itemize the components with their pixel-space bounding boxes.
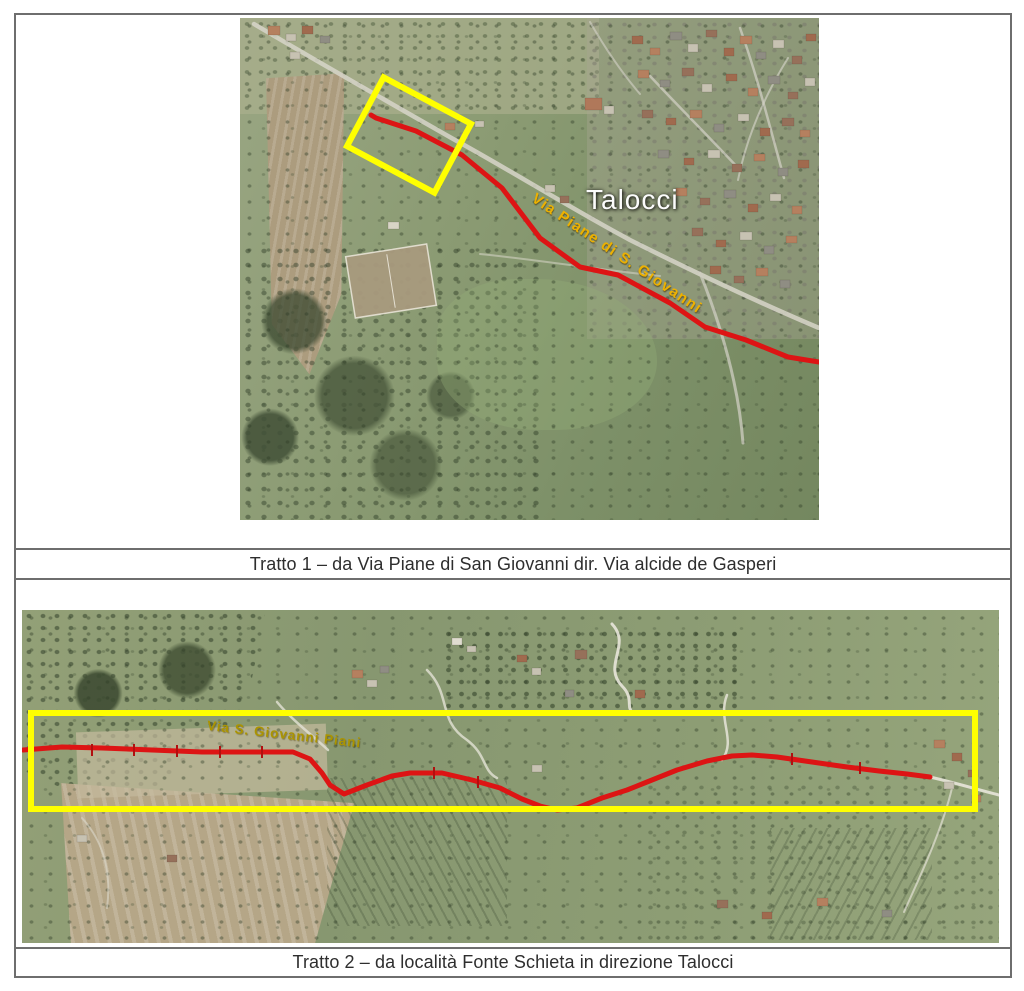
figure1-cell: Talocci Via Piane di S. Giovanni (16, 15, 1010, 548)
highlight-box-tratto2 (31, 713, 975, 809)
satellite-image-tratto2: Via S. Giovanni Piani (22, 610, 999, 943)
figure2-cell: Via S. Giovanni Piani (16, 578, 1010, 947)
figures-table: Talocci Via Piane di S. Giovanni Tratto … (14, 13, 1012, 978)
satellite-image-tratto1: Talocci Via Piane di S. Giovanni (240, 18, 819, 520)
village-houses (268, 26, 816, 288)
houses (77, 638, 981, 919)
highlight-box-tratto1 (347, 77, 471, 192)
figure2-caption-text: Tratto 2 – da località Fonte Schieta in … (293, 952, 734, 973)
sports-field (346, 244, 437, 318)
figure2-caption: Tratto 2 – da località Fonte Schieta in … (16, 947, 1010, 976)
map1-overlay-graphics (240, 18, 819, 520)
map2-overlay-graphics (22, 610, 999, 943)
route-line-tratto2 (23, 747, 930, 810)
town-label-talocci: Talocci (586, 184, 679, 216)
figure1-caption-text: Tratto 1 – da Via Piane di San Giovanni … (250, 554, 777, 575)
figure1-caption: Tratto 1 – da Via Piane di San Giovanni … (16, 548, 1010, 578)
